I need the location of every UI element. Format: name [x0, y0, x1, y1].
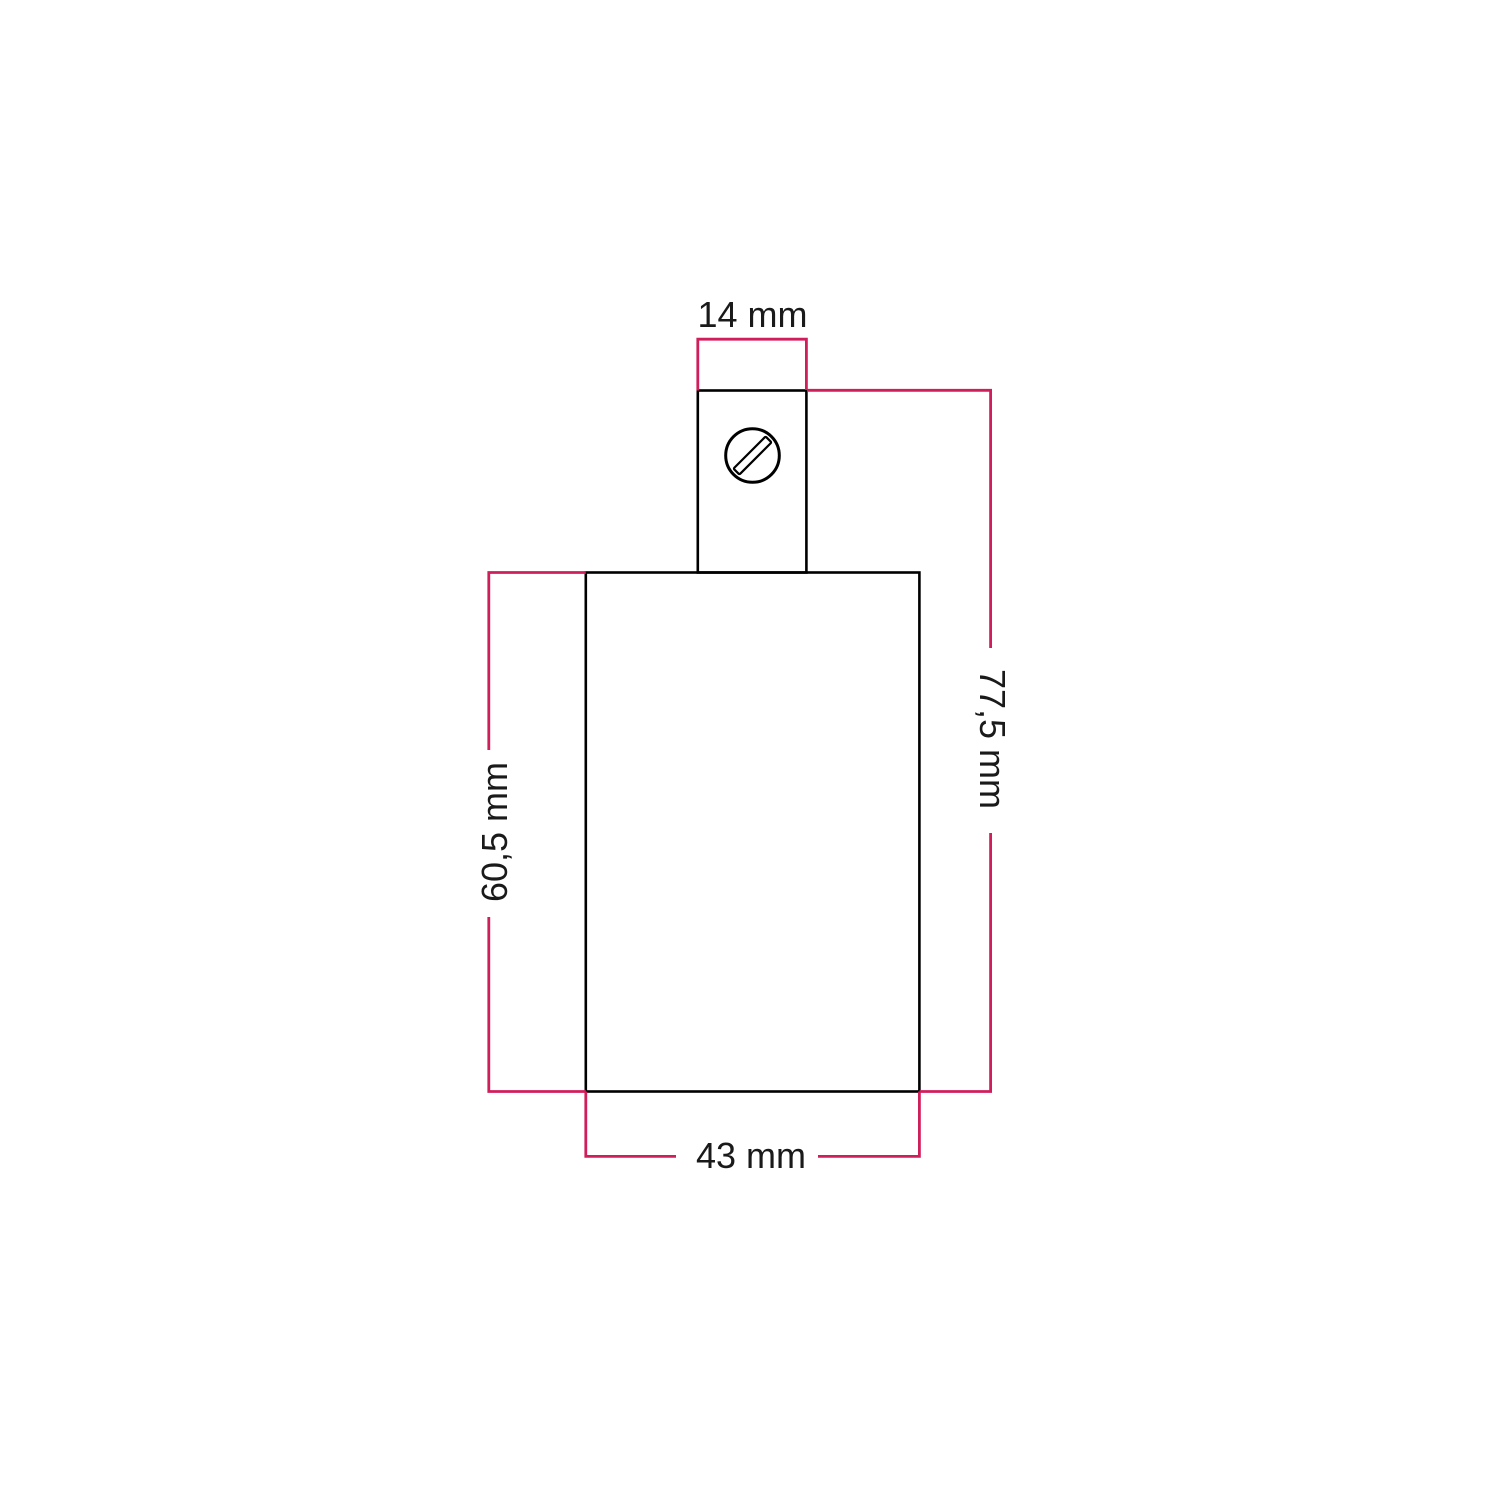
- svg-text:77,5 mm: 77,5 mm: [972, 669, 1013, 809]
- svg-text:60,5 mm: 60,5 mm: [474, 762, 515, 902]
- svg-text:14 mm: 14 mm: [697, 294, 807, 335]
- svg-text:43 mm: 43 mm: [696, 1135, 806, 1176]
